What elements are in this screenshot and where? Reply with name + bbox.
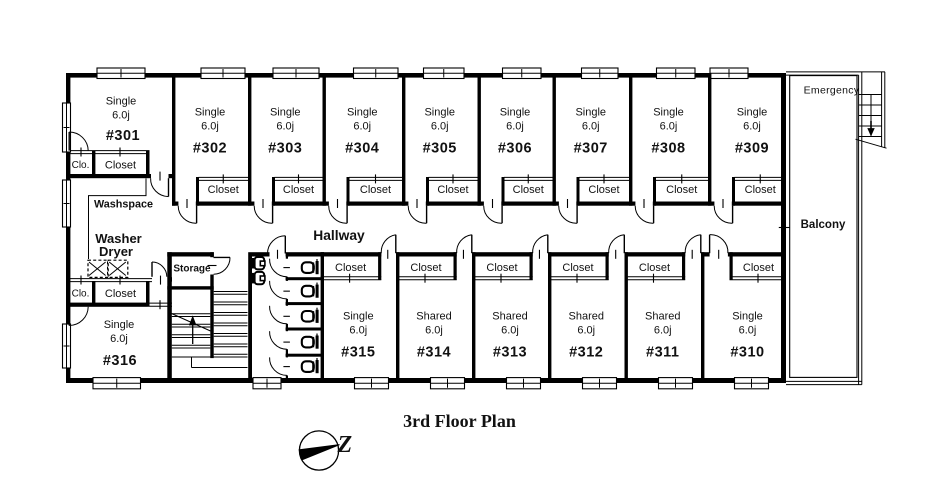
svg-text:6.0j: 6.0j [431, 121, 449, 133]
svg-text:Hallway: Hallway [313, 228, 365, 243]
svg-text:#310: #310 [730, 345, 764, 361]
svg-text:Single: Single [653, 107, 684, 119]
svg-text:#313: #313 [493, 345, 527, 361]
svg-text:Storage: Storage [173, 264, 211, 275]
svg-text:Single: Single [737, 107, 768, 119]
svg-text:Closet: Closet [743, 262, 774, 274]
svg-text:Single: Single [270, 107, 301, 119]
svg-text:Closet: Closet [486, 262, 517, 274]
svg-text:Closet: Closet [588, 184, 619, 196]
svg-text:Closet: Closet [335, 262, 366, 274]
svg-text:Shared: Shared [416, 311, 451, 323]
svg-text:Closet: Closet [360, 184, 391, 196]
svg-text:6.0j: 6.0j [353, 121, 371, 133]
svg-text:6.0j: 6.0j [654, 325, 672, 337]
svg-text:Closet: Closet [410, 262, 441, 274]
svg-text:3rd Floor Plan: 3rd Floor Plan [403, 411, 516, 431]
svg-text:Washspace: Washspace [94, 199, 153, 211]
svg-text:Single: Single [106, 96, 137, 108]
svg-text:Closet: Closet [105, 288, 136, 300]
svg-text:Z: Z [337, 432, 353, 458]
svg-text:Dryer: Dryer [99, 244, 133, 259]
svg-text:Shared: Shared [645, 311, 680, 323]
svg-text:Single: Single [104, 319, 135, 331]
svg-text:6.0j: 6.0j [582, 121, 600, 133]
svg-text:Clo.: Clo. [72, 289, 90, 300]
svg-text:6.0j: 6.0j [201, 121, 219, 133]
svg-text:#304: #304 [345, 141, 379, 157]
svg-text:Single: Single [732, 311, 763, 323]
svg-text:#303: #303 [268, 141, 302, 157]
svg-text:Clo.: Clo. [72, 160, 90, 171]
svg-text:6.0j: 6.0j [739, 325, 757, 337]
svg-text:#302: #302 [193, 141, 227, 157]
svg-text:6.0j: 6.0j [349, 325, 367, 337]
svg-text:Closet: Closet [105, 160, 136, 172]
svg-text:Closet: Closet [745, 184, 776, 196]
svg-text:Shared: Shared [569, 311, 604, 323]
svg-text:Single: Single [195, 107, 226, 119]
svg-text:#301: #301 [106, 128, 140, 144]
svg-text:Single: Single [343, 311, 374, 323]
svg-text:Emergency: Emergency [804, 85, 860, 97]
svg-text:#314: #314 [417, 345, 451, 361]
svg-text:6.0j: 6.0j [425, 325, 443, 337]
svg-text:Single: Single [424, 107, 455, 119]
svg-text:#312: #312 [569, 345, 603, 361]
svg-text:6.0j: 6.0j [506, 121, 524, 133]
svg-text:#316: #316 [103, 353, 137, 369]
svg-text:#307: #307 [574, 141, 608, 157]
svg-text:6.0j: 6.0j [276, 121, 294, 133]
svg-text:#305: #305 [423, 141, 457, 157]
svg-text:Closet: Closet [437, 184, 468, 196]
svg-text:Shared: Shared [492, 311, 527, 323]
svg-text:Closet: Closet [283, 184, 314, 196]
svg-text:6.0j: 6.0j [743, 121, 761, 133]
svg-text:Single: Single [347, 107, 378, 119]
svg-text:#308: #308 [651, 141, 685, 157]
svg-text:6.0j: 6.0j [501, 325, 519, 337]
svg-text:#309: #309 [735, 141, 769, 157]
svg-text:Closet: Closet [666, 184, 697, 196]
svg-text:#315: #315 [341, 345, 375, 361]
svg-text:Closet: Closet [513, 184, 544, 196]
svg-text:Closet: Closet [208, 184, 239, 196]
svg-text:Single: Single [500, 107, 531, 119]
svg-text:6.0j: 6.0j [110, 333, 128, 345]
svg-text:Balcony: Balcony [801, 219, 846, 231]
svg-text:6.0j: 6.0j [112, 110, 130, 122]
svg-text:Closet: Closet [639, 262, 670, 274]
svg-text:Closet: Closet [562, 262, 593, 274]
svg-text:Single: Single [575, 107, 606, 119]
svg-text:#311: #311 [646, 345, 679, 361]
svg-text:6.0j: 6.0j [660, 121, 678, 133]
svg-text:6.0j: 6.0j [577, 325, 595, 337]
svg-text:#306: #306 [498, 141, 532, 157]
